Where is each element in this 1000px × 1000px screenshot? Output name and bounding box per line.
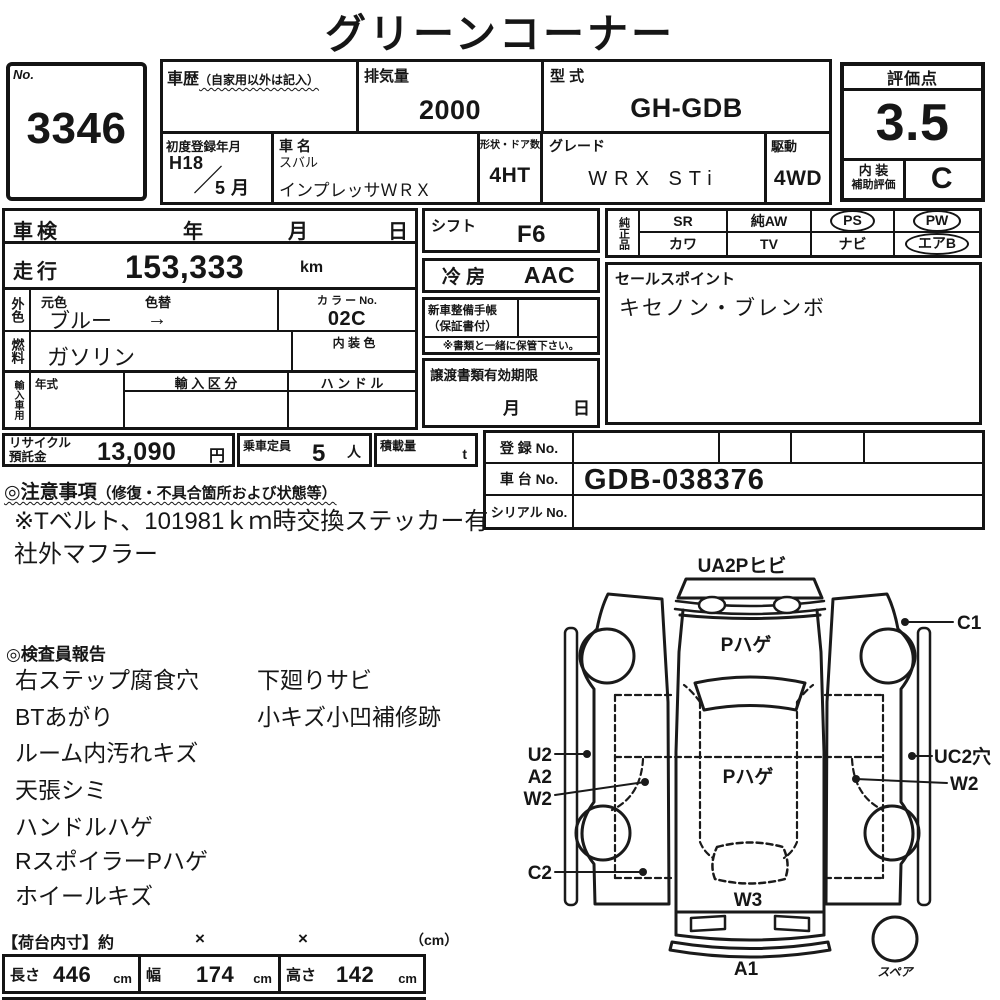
car-model: インプレッサＷＲＸ: [279, 176, 472, 201]
history-note: （自家用以外は記入）: [199, 73, 319, 87]
grade-cell: グレード WRX STi: [543, 134, 767, 202]
page-title: グリーンコーナー: [0, 0, 1000, 60]
wiper-pivot: [699, 597, 725, 613]
diagram-label-c2: C2: [528, 863, 552, 884]
inspector-item: 下廻りサビ: [257, 661, 372, 695]
lot-number-value: 3346: [10, 104, 143, 154]
displacement-label: 排気量: [364, 65, 536, 86]
transfer-day: 日: [573, 394, 590, 419]
recycle-value: 13,090: [97, 438, 176, 467]
body-doors-cell: 形状・ドア数 4HT: [480, 134, 543, 202]
recycle-unit: 円: [209, 442, 225, 466]
chassis-no-row: 車 台 No. GDB-038376: [486, 464, 982, 496]
grade-value: WRX STi: [549, 168, 758, 191]
cargo-length-label: 長さ: [10, 964, 40, 985]
diagram-label-a1: A1: [734, 959, 759, 980]
import-year-label: 年式: [35, 379, 58, 391]
reg-no-divider-2: [790, 433, 792, 462]
option-cell-tv: TV: [728, 233, 812, 255]
windshield: [695, 677, 805, 710]
exterior-color-value: ブルー: [49, 305, 112, 335]
car-body-right-edge: [817, 610, 824, 935]
shaken-year: 年: [183, 215, 203, 244]
cargo-heading: 【荷台内寸】約: [2, 929, 114, 953]
cargo-length-cell: 長さ 446 cm: [5, 957, 141, 991]
cargo-times-2: ×: [298, 929, 308, 949]
import-handle-label: ハ ン ド ル: [289, 373, 415, 392]
inspector-item: ハンドルハゲ: [15, 808, 153, 842]
serial-no-label: シリアル No.: [486, 496, 574, 527]
drive-value: 4WD: [771, 167, 825, 191]
recycle-box: リサイクル 預託金 13,090 円: [2, 433, 235, 467]
interior-color-label: 内 装 色: [293, 332, 415, 351]
mileage-value: 153,333: [125, 249, 244, 286]
displacement-cell: 排気量 2000: [359, 62, 544, 134]
sales-point-label: セールスポイント: [608, 265, 979, 289]
inspector-item: ホイールキズ: [15, 877, 153, 911]
transfer-docs-label: 譲渡書類有効期限: [425, 361, 597, 387]
option-cell-airb: エアB: [895, 233, 979, 255]
transfer-month: 月: [503, 394, 520, 419]
rating-header: 評価点: [844, 66, 981, 91]
exterior-color-row: 外色 元色 色替 ブルー → カ ラ ー No. 02C: [5, 290, 415, 332]
recycle-label2: 預託金: [9, 451, 71, 465]
left-front-wheel: [580, 629, 634, 683]
shaken-day: 日: [388, 215, 408, 244]
diagram-label-spare: スペア: [877, 965, 914, 979]
notes-line-1: ※Tベルト、101981ｋｍ時交換ステッカー有: [14, 501, 488, 536]
service-book-label-cell: 新車整備手帳 （保証書付）: [425, 300, 519, 336]
payload-unit: t: [462, 446, 467, 462]
shift-value: F6: [517, 221, 546, 249]
history-cell: 車歴（自家用以外は記入）: [163, 62, 359, 134]
option-ps: PS: [830, 210, 875, 232]
cowl-strip: [675, 609, 825, 614]
inspector-item: BTあがり: [15, 698, 113, 732]
import-row: 輸入車用 年式 輸 入 区 分 ハ ン ド ル: [5, 373, 415, 427]
rear-light-left: [691, 916, 725, 931]
marker-dot-uc2: [908, 752, 916, 760]
diagram-label-w2-left: W2: [524, 789, 553, 810]
diagram-label-roof: Pハゲ: [723, 766, 774, 788]
registration-table: 登 録 No. 車 台 No. GDB-038376 シリアル No.: [483, 430, 985, 530]
diagram-label-a2: A2: [528, 767, 552, 788]
option-cell-navi: ナビ: [812, 233, 895, 255]
recycle-label1: リサイクル: [9, 437, 71, 451]
notes-heading-text: ◎注意事項: [4, 482, 97, 503]
service-book-note-text: ※書類と一緒に保管下さい。: [443, 338, 579, 353]
shaken-month: 月: [288, 215, 308, 244]
service-book-box: 新車整備手帳 （保証書付） ※書類と一緒に保管下さい。: [422, 297, 600, 355]
import-handle-cell: ハ ン ド ル: [289, 373, 415, 427]
diagram-label-top: UA2Pヒビ: [698, 555, 787, 577]
sales-point-box: セールスポイント キセノン・ブレンボ: [605, 262, 982, 425]
shaken-label: 車検: [13, 215, 61, 244]
option-cell-kawa: カワ: [640, 233, 728, 255]
notes-heading-note: （修復・不具合箇所および状態等）: [97, 485, 337, 502]
payload-label: 積載量: [380, 437, 416, 454]
model-code-value: GH-GDB: [550, 93, 823, 124]
chassis-no-label: 車 台 No.: [486, 464, 574, 494]
shaken-row: 車検 年 月 日: [5, 211, 415, 244]
option-cell-ps: PS: [812, 211, 895, 233]
option-cell-sr: SR: [640, 211, 728, 233]
cargo-width-cell: 幅 174 cm: [141, 957, 281, 991]
rating-score: 3.5: [844, 91, 981, 158]
sales-point-value: キセノン・ブレンボ: [608, 289, 979, 325]
exterior-side-label: 外色: [5, 290, 31, 330]
inspector-item: 小キズ小凹補修跡: [257, 698, 441, 732]
lot-number-box: No. 3346: [6, 62, 147, 201]
spare-tire: [873, 917, 917, 961]
option-tv: TV: [760, 236, 778, 252]
mileage-row: 走行 153,333 km: [5, 247, 415, 290]
aircon-value: AAC: [502, 261, 597, 290]
rear-window: [712, 843, 787, 884]
cargo-width-value: 174: [196, 962, 234, 988]
color-change-arrow: →: [147, 308, 167, 331]
rear-bumper: [670, 942, 830, 957]
marker-dot-a2w2: [641, 778, 649, 786]
cargo-height-value: 142: [336, 962, 374, 988]
shift-box: シフト F6: [422, 208, 600, 253]
reg-no-divider-1: [718, 433, 720, 462]
wiper-pivot: [774, 597, 800, 613]
chassis-no-value: GDB-038376: [584, 464, 765, 497]
option-sr: SR: [673, 213, 692, 229]
factory-options-grid: 純正品 SR 純AW PS PW カワ TV ナビ エアB: [605, 208, 982, 258]
diagram-label-w3: W3: [734, 890, 763, 911]
car-name-label: 車 名: [279, 136, 472, 156]
cargo-length-value: 446: [53, 962, 91, 988]
notes-heading: ◎注意事項（修復・不具合箇所および状態等）: [4, 477, 337, 504]
interior-grade: C: [906, 161, 978, 197]
interior-rating-label-cell: 内 装 補助評価: [844, 161, 906, 198]
color-no-cell: カ ラ ー No. 02C: [277, 290, 415, 330]
displacement-value: 2000: [364, 95, 536, 126]
color-no-label: カ ラ ー No.: [279, 290, 415, 308]
capacity-value: 5: [312, 440, 326, 468]
service-book-label2: （保証書付）: [428, 318, 514, 334]
reg-no-row: 登 録 No.: [486, 433, 982, 464]
first-reg-month: 5 月: [215, 174, 250, 200]
car-body-left-edge: [676, 610, 683, 935]
shift-label: シフト: [431, 215, 476, 236]
cargo-table: 長さ 446 cm 幅 174 cm 高さ 142 cm: [2, 954, 426, 994]
grade-label: グレード: [549, 136, 758, 156]
fuel-value: ガソリン: [47, 340, 135, 372]
inspector-item: RスポイラーPハゲ: [15, 842, 208, 876]
option-cell-pw: PW: [895, 211, 979, 233]
cargo-height-label: 高さ: [286, 964, 316, 985]
diagram-label-u2: U2: [528, 745, 552, 766]
option-airb: エアB: [905, 233, 969, 255]
rear-light-right: [775, 916, 809, 931]
auction-sheet: グリーンコーナー No. 3346 車歴（自家用以外は記入） 排気量 2000 …: [0, 0, 1000, 1000]
right-front-wheel: [861, 629, 915, 683]
marker-dot-c2: [639, 868, 647, 876]
marker-dot-u2: [583, 750, 591, 758]
aircon-label: 冷 房: [425, 261, 502, 290]
front-bumper: [678, 579, 822, 598]
model-code-label: 型 式: [550, 65, 823, 86]
car-damage-diagram: UA2Pヒビ Pハゲ C1 U2 A2 W2 UC2穴 Pハゲ W2 C2 W3…: [495, 552, 1000, 1000]
car-name-cell: 車 名 スバル インプレッサＷＲＸ: [274, 134, 480, 202]
color-no-value: 02C: [279, 308, 415, 331]
left-rear-wheel: [576, 806, 630, 860]
reg-no-label: 登 録 No.: [486, 433, 574, 462]
body-doors-label: 形状・ドア数: [480, 134, 540, 151]
diagram-label-w2-right: W2: [950, 774, 979, 795]
cargo-height-unit: cm: [398, 971, 417, 986]
interior-rating-row: 内 装 補助評価 C: [844, 158, 981, 198]
left-rocker-strip: [565, 628, 577, 905]
options-side-label: 純正品: [608, 211, 640, 255]
fuel-row: 燃料 ガソリン 内 装 色: [5, 332, 415, 373]
import-year-cell: 年式: [31, 373, 125, 427]
rating-label: 評価点: [887, 65, 938, 89]
cargo-length-unit: cm: [113, 971, 132, 986]
inspector-item: 右ステップ腐食穴: [15, 661, 199, 695]
car-body-bottom: [676, 935, 824, 940]
cargo-height-cell: 高さ 142 cm: [281, 957, 423, 991]
payload-box: 積載量 t: [374, 433, 478, 467]
history-label: 車歴: [167, 71, 199, 88]
first-reg-cell: 初度登録年月 H18 ／ 5 月: [163, 134, 274, 202]
cargo-width-label: 幅: [146, 964, 161, 985]
option-kawa: カワ: [669, 234, 697, 254]
service-book-note: ※書類と一緒に保管下さい。: [425, 336, 597, 352]
marker-dot-w2r: [852, 775, 860, 783]
import-division-label: 輸 入 区 分: [125, 373, 287, 392]
inspector-item: 天張シミ: [15, 771, 107, 805]
serial-no-row: シリアル No.: [486, 496, 982, 527]
mileage-label: 走行: [13, 255, 61, 284]
reg-no-divider-3: [863, 433, 865, 462]
notes-line-2: 社外マフラー: [14, 534, 158, 569]
import-division-cell: 輸 入 区 分: [125, 373, 289, 427]
option-navi: ナビ: [839, 234, 867, 254]
transfer-docs-box: 譲渡書類有効期限 月 日: [422, 358, 600, 428]
right-rocker-strip: [918, 628, 930, 905]
vehicle-table: 車歴（自家用以外は記入） 排気量 2000 型 式 GH-GDB 初度登録年月 …: [160, 59, 832, 205]
diagram-label-c1: C1: [957, 613, 982, 634]
option-aw: 純AW: [751, 211, 788, 231]
car-maker: スバル: [279, 156, 472, 170]
cargo-width-unit: cm: [253, 971, 272, 986]
drive-label: 駆動: [771, 136, 825, 155]
lot-number-label: No.: [13, 67, 34, 82]
capacity-unit: 人: [347, 442, 361, 462]
model-code-cell: 型 式 GH-GDB: [544, 62, 829, 134]
cargo-heading-row: 【荷台内寸】約 × × （cm）: [2, 929, 472, 953]
capacity-box: 乗車定員 5 人: [237, 433, 372, 467]
rating-box: 評価点 3.5 内 装 補助評価 C: [840, 62, 985, 202]
cargo-unit: （cm）: [410, 930, 458, 950]
inspector-item: ルーム内汚れキズ: [15, 734, 198, 768]
aircon-box: 冷 房 AAC: [422, 258, 600, 293]
import-side-label: 輸入車用: [5, 373, 31, 427]
service-book-label1: 新車整備手帳: [428, 302, 514, 318]
right-rear-wheel: [865, 806, 919, 860]
interior-color-cell: 内 装 色: [291, 332, 415, 370]
interior-label-2: 補助評価: [844, 179, 903, 191]
condition-table: 車検 年 月 日 走行 153,333 km 外色 元色 色替 ブルー → カ …: [2, 208, 418, 430]
fuel-side-label: 燃料: [5, 332, 31, 370]
option-pw: PW: [913, 210, 962, 232]
drive-cell: 駆動 4WD: [767, 134, 829, 202]
diagram-label-uc2: UC2穴: [934, 745, 991, 768]
cowl-line: [680, 615, 820, 619]
cargo-times-1: ×: [195, 929, 205, 949]
diagram-label-hood: Pハゲ: [721, 634, 772, 656]
interior-label-1: 内 装: [844, 163, 903, 179]
capacity-label: 乗車定員: [243, 437, 291, 454]
body-doors-value: 4HT: [480, 164, 540, 188]
marker-dot-c1: [901, 618, 909, 626]
option-cell-aw: 純AW: [728, 211, 812, 233]
mileage-unit: km: [300, 259, 323, 277]
